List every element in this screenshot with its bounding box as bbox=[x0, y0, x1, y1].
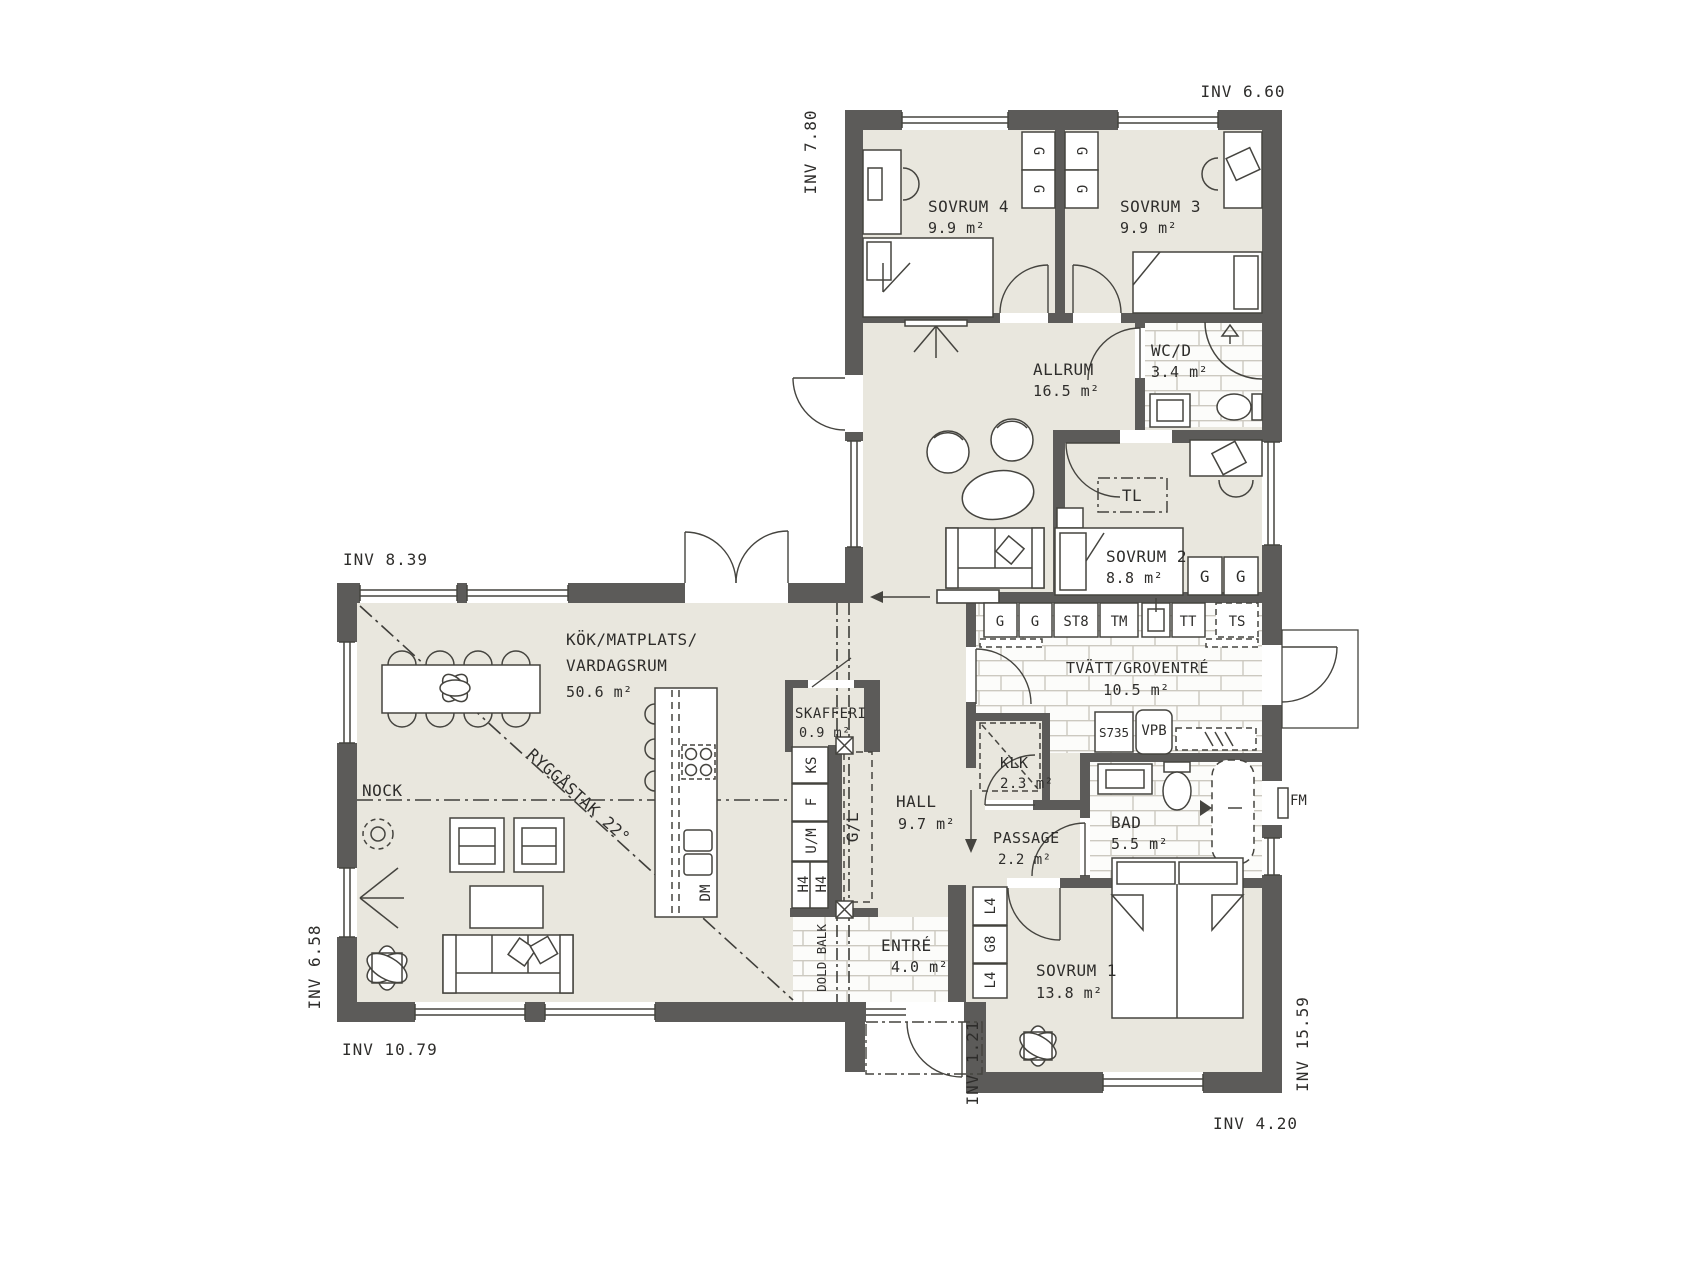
gl-label: G/L bbox=[843, 812, 862, 842]
sovrum1-bed bbox=[1112, 858, 1243, 1018]
window-entre-sidelight bbox=[866, 1002, 906, 1022]
dim-top-wing-left: INV 7.80 bbox=[801, 109, 820, 194]
sovrum1-l4-2: L4 bbox=[983, 972, 999, 989]
floor-plan-drawing: INV 6.60 INV 7.80 INV 8.39 INV 6.58 INV … bbox=[0, 0, 1707, 1280]
living-armchair-2 bbox=[514, 818, 564, 872]
porch-tvatt bbox=[1282, 630, 1358, 728]
room-area: 9.9 m² bbox=[928, 219, 985, 237]
wall-klk-right bbox=[1042, 713, 1050, 808]
room-area: 50.6 m² bbox=[566, 683, 633, 701]
wall-skafferi-left bbox=[785, 680, 793, 752]
sovrum1-l4-1: L4 bbox=[983, 898, 999, 915]
s735-label: S735 bbox=[1099, 725, 1129, 740]
room-name: ENTRÉ bbox=[881, 936, 932, 955]
tvatt-st8: ST8 bbox=[1063, 614, 1088, 630]
window-fm bbox=[1262, 781, 1288, 825]
wall-right bbox=[1262, 110, 1282, 1093]
room-name: HALL bbox=[896, 792, 937, 811]
room-area: 9.9 m² bbox=[1120, 219, 1177, 237]
dim-bottom-left: INV 10.79 bbox=[342, 1040, 438, 1059]
tvatt-g-2: G bbox=[1031, 614, 1039, 630]
room-name-line2: VARDAGSRUM bbox=[566, 656, 667, 675]
appliance-h4-1: H4 bbox=[796, 876, 812, 893]
window-kitchen-north-1 bbox=[360, 583, 457, 603]
dim-right: INV 15.59 bbox=[1293, 996, 1312, 1092]
dim-kitchen-top: INV 8.39 bbox=[343, 550, 428, 569]
vpb-label: VPB bbox=[1141, 723, 1166, 739]
allrum-sofa bbox=[946, 528, 1044, 588]
wardrobe-g-1: G bbox=[1030, 147, 1046, 155]
wall-passage-sovrum1 bbox=[1060, 878, 1080, 888]
tvatt-g-1: G bbox=[996, 614, 1004, 630]
sovrum3-bed bbox=[1133, 252, 1262, 313]
room-name: BAD bbox=[1111, 813, 1141, 832]
fm-label: FM bbox=[1290, 793, 1307, 809]
wall-entre-north bbox=[790, 908, 878, 917]
wardrobe-g-2: G bbox=[1030, 185, 1046, 193]
room-name-line1: KÖK/MATPLATS/ bbox=[566, 630, 698, 649]
dim-entry: INV 1.21 bbox=[963, 1020, 982, 1105]
window-bad-east bbox=[1262, 838, 1282, 875]
window-living-south-2 bbox=[545, 1002, 655, 1022]
bad-sink bbox=[1098, 764, 1152, 794]
room-name: SOVRUM 3 bbox=[1120, 197, 1201, 216]
appliance-f: F bbox=[804, 798, 820, 806]
tvatt-bench bbox=[1176, 728, 1256, 750]
appliance-ks: KS bbox=[804, 757, 820, 774]
window-kitchen-west bbox=[337, 642, 357, 743]
allrum-chair-1 bbox=[927, 431, 969, 473]
room-area: 10.5 m² bbox=[1103, 681, 1170, 699]
tvatt-tm: TM bbox=[1111, 614, 1128, 630]
wcd-toilet bbox=[1217, 394, 1262, 420]
room-area: 8.8 m² bbox=[1106, 569, 1163, 587]
room-area: 9.7 m² bbox=[898, 815, 955, 833]
nock-label: NOCK bbox=[362, 781, 403, 800]
room-name: WC/D bbox=[1151, 341, 1192, 360]
room-area: 2.2 m² bbox=[998, 852, 1052, 868]
dim-bottom-right: INV 4.20 bbox=[1213, 1114, 1298, 1133]
window-kitchen-north-2 bbox=[467, 583, 568, 603]
room-name: SOVRUM 2 bbox=[1106, 547, 1187, 566]
wall-sliding-pocket bbox=[997, 592, 1055, 603]
door-tvatt-exterior bbox=[1282, 647, 1337, 702]
room-name: ALLRUM bbox=[1033, 360, 1094, 379]
window-sovrum3 bbox=[1118, 110, 1218, 130]
floor-plan-page: INV 6.60 INV 7.80 INV 8.39 INV 6.58 INV … bbox=[0, 0, 1707, 1280]
room-area: 2.3 m² bbox=[1000, 776, 1054, 792]
appliance-um: U/M bbox=[804, 828, 820, 853]
tvatt-tt: TT bbox=[1180, 614, 1197, 630]
door-kitchen-deck-double bbox=[685, 531, 788, 583]
wall-hall-tvatt-b bbox=[966, 702, 976, 768]
living-sofa bbox=[443, 935, 573, 993]
dim-top-right: INV 6.60 bbox=[1200, 82, 1285, 101]
room-area: 0.9 m² bbox=[799, 725, 851, 741]
window-living-west bbox=[337, 868, 357, 937]
room-area: 16.5 m² bbox=[1033, 382, 1100, 400]
room-name: TVÄTT/GROVENTRÉ bbox=[1066, 658, 1209, 677]
allrum-chair-2 bbox=[991, 419, 1033, 461]
sovrum2-nightstand bbox=[1057, 508, 1083, 528]
door-entre-exterior bbox=[907, 1022, 962, 1077]
window-living-south-1 bbox=[415, 1002, 525, 1022]
appliance-h4-2: H4 bbox=[814, 876, 830, 893]
living-armchair-1 bbox=[450, 818, 504, 872]
dim-living-left: INV 6.58 bbox=[305, 924, 324, 1009]
room-area: 4.0 m² bbox=[891, 958, 948, 976]
room-name: SOVRUM 4 bbox=[928, 197, 1009, 216]
wall-entre-sovrum1 bbox=[948, 885, 966, 1002]
living-coffee-table bbox=[470, 886, 543, 928]
wall-appliance-back bbox=[828, 745, 842, 908]
island-dm: DM bbox=[698, 885, 714, 902]
sovrum2-g-2: G bbox=[1236, 567, 1246, 586]
sovrum2-g-1: G bbox=[1200, 567, 1210, 586]
room-area: 3.4 m² bbox=[1151, 363, 1208, 381]
dold-balk-label: DOLD BALK bbox=[814, 924, 829, 992]
wcd-sink bbox=[1150, 394, 1190, 427]
window-sovrum4 bbox=[902, 110, 1008, 130]
tvatt-ts: TS bbox=[1229, 614, 1246, 630]
sovrum4-bed bbox=[863, 238, 993, 317]
room-name: SOVRUM 1 bbox=[1036, 961, 1117, 980]
bad-toilet bbox=[1163, 762, 1191, 810]
room-name: SKAFFERI bbox=[795, 706, 866, 722]
room-name: KLK bbox=[1000, 754, 1029, 772]
door-allrum-exterior bbox=[793, 378, 845, 430]
wall-sovrum4-3-divider bbox=[1055, 130, 1065, 322]
sovrum1-g8: G8 bbox=[983, 936, 999, 953]
window-allrum-west bbox=[845, 441, 863, 547]
wardrobe-g-4: G bbox=[1073, 185, 1089, 193]
room-name: PASSAGE bbox=[993, 829, 1060, 847]
tl-label: TL bbox=[1122, 486, 1142, 505]
room-area: 5.5 m² bbox=[1111, 835, 1168, 853]
wardrobe-g-3: G bbox=[1073, 147, 1089, 155]
wall-entry-stub bbox=[845, 1022, 865, 1072]
kitchen-island bbox=[645, 688, 717, 917]
wall-klk-top bbox=[976, 713, 1050, 721]
window-sovrum1-south bbox=[1103, 1072, 1203, 1093]
window-sovrum2-east bbox=[1262, 442, 1282, 545]
room-area: 13.8 m² bbox=[1036, 984, 1103, 1002]
